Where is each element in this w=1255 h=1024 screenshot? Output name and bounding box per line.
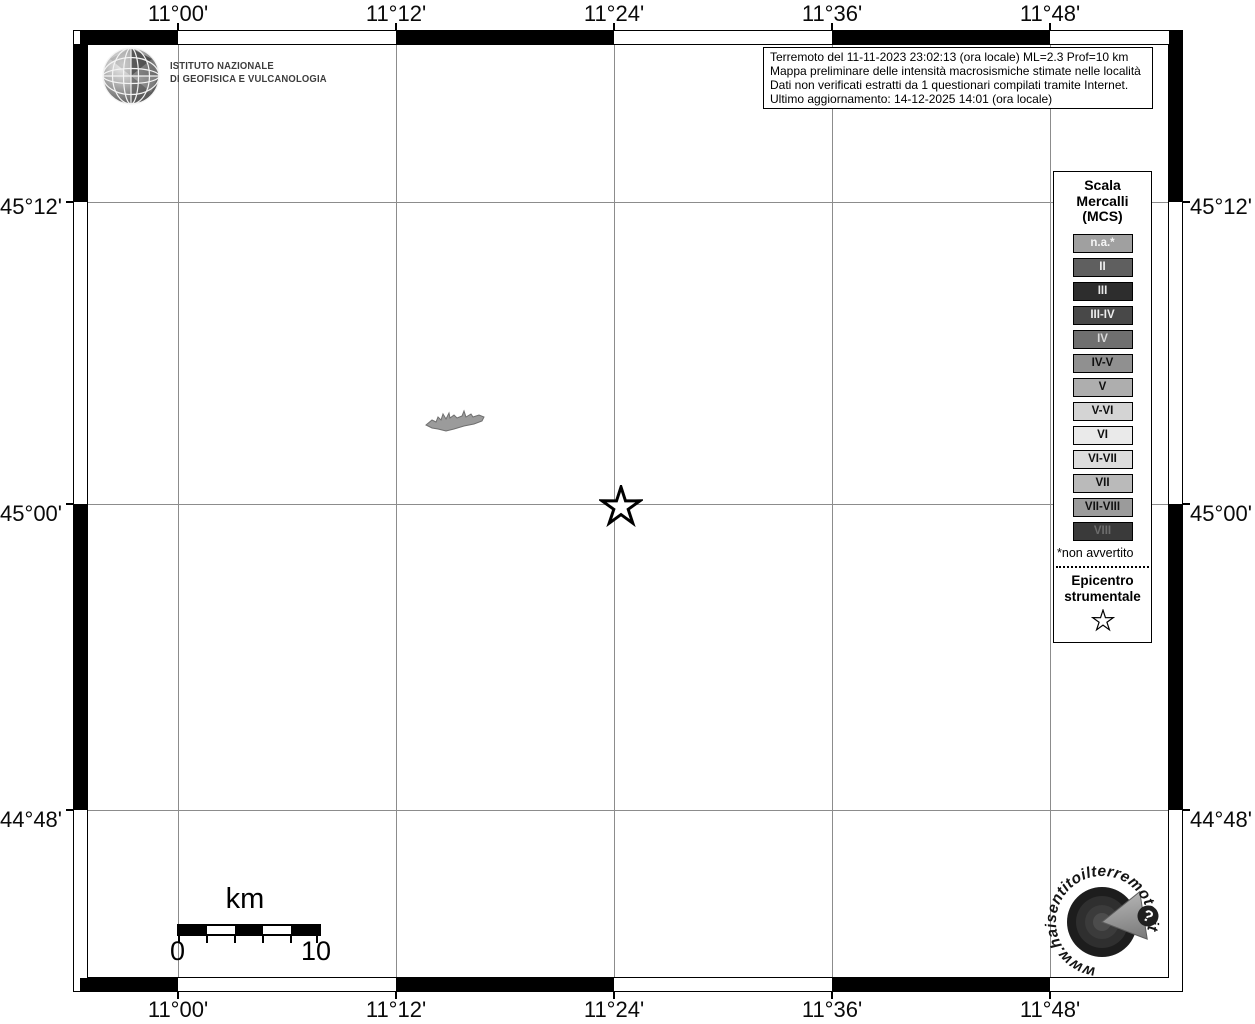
- epicenter-label-line2: strumentale: [1054, 589, 1151, 605]
- scalebar: [177, 924, 321, 936]
- info-line-last-update: Ultimo aggiornamento: 14-12-2025 14:01 (…: [770, 93, 1152, 107]
- axis-label-bottom-lon: 11°24': [584, 997, 644, 1023]
- axis-tick: [177, 23, 179, 30]
- epicenter-star-icon: [599, 485, 643, 529]
- scalebar-tick: [234, 936, 236, 943]
- axis-tick: [831, 992, 833, 999]
- legend-footnote: *non avvertito: [1054, 546, 1151, 560]
- axis-label-bottom-lon: 11°36': [802, 997, 862, 1023]
- scalebar-segment: [263, 926, 291, 934]
- map-frame-segment: [832, 978, 1050, 992]
- axis-tick: [1183, 201, 1190, 203]
- intensity-item-5: V: [1073, 378, 1133, 397]
- axis-label-right-lat: 44°48': [1190, 807, 1255, 833]
- map-frame-segment: [1169, 30, 1183, 44]
- intensity-item-6-7: VI-VII: [1073, 450, 1133, 469]
- scalebar-tick: [290, 936, 292, 943]
- axis-label-right-lat: 45°12': [1190, 194, 1255, 220]
- intensity-item-3-4: III-IV: [1073, 306, 1133, 325]
- info-line-event: Terremoto del 11-11-2023 23:02:13 (ora l…: [770, 51, 1152, 65]
- scalebar-segment: [207, 926, 235, 934]
- map-frame-segment: [1169, 44, 1183, 202]
- scalebar-unit-label: km: [203, 883, 287, 916]
- map-frame-segment: [396, 978, 614, 992]
- axis-tick: [66, 809, 73, 811]
- axis-tick: [1183, 809, 1190, 811]
- intensity-item-3: III: [1073, 282, 1133, 301]
- locality-polygon: [424, 398, 488, 438]
- legend-title-line2: Mercalli: [1054, 194, 1151, 210]
- scalebar-segment: [235, 926, 263, 934]
- haisentitoilterremoto-logo: www.haisentitoilterremoto.it ?: [1042, 862, 1168, 988]
- axis-tick: [177, 992, 179, 999]
- intensity-item-5-6: V-VI: [1073, 402, 1133, 421]
- axis-label-left-lat: 44°48': [0, 807, 62, 833]
- legend-title: Scala Mercalli (MCS): [1054, 172, 1151, 225]
- axis-label-bottom-lon: 11°48': [1020, 997, 1080, 1023]
- epicenter-label-line1: Epicentro: [1054, 573, 1151, 589]
- scalebar-end-label: 10: [301, 936, 361, 967]
- scalebar-tick: [262, 936, 264, 943]
- seismic-target-icon: [1067, 887, 1147, 957]
- scalebar-segment: [179, 926, 207, 934]
- info-line-map-type: Mappa preliminare delle intensità macros…: [770, 65, 1152, 79]
- map-frame-segment: [832, 30, 1050, 44]
- ingv-logo: ISTITUTO NAZIONALE DI GEOFISICA E VULCAN…: [100, 45, 400, 109]
- map-frame-segment: [73, 44, 87, 202]
- axis-tick: [66, 503, 73, 505]
- map-frame-segment: [80, 30, 178, 44]
- map-frame-segment: [80, 978, 178, 992]
- axis-tick: [1183, 503, 1190, 505]
- ingv-globe-icon: [100, 45, 162, 107]
- ingv-logo-text: ISTITUTO NAZIONALE DI GEOFISICA E VULCAN…: [170, 60, 327, 85]
- intensity-item-7: VII: [1073, 474, 1133, 493]
- axis-label-bottom-lon: 11°00': [148, 997, 208, 1023]
- axis-tick: [613, 992, 615, 999]
- axis-tick: [613, 23, 615, 30]
- epicenter-label: Epicentro strumentale: [1054, 573, 1151, 605]
- map-frame-segment: [1169, 504, 1183, 810]
- epicenter-legend-star-icon: [1091, 609, 1115, 633]
- info-line-data-source: Dati non verificati estratti da 1 questi…: [770, 79, 1152, 93]
- intensity-item-2: II: [1073, 258, 1133, 277]
- legend-title-line3: (MCS): [1054, 209, 1151, 225]
- ingv-logo-text-line1: ISTITUTO NAZIONALE: [170, 60, 327, 73]
- axis-tick: [66, 201, 73, 203]
- axis-label-bottom-lon: 11°12': [366, 997, 426, 1023]
- scalebar-segment: [291, 926, 319, 934]
- axis-label-left-lat: 45°12': [0, 194, 62, 220]
- legend-title-line1: Scala: [1054, 178, 1151, 194]
- macroseismic-map: 11°00' 11°12' 11°24' 11°36' 11°48' 11°00…: [0, 0, 1255, 1024]
- axis-tick: [1049, 992, 1051, 999]
- axis-tick: [831, 23, 833, 30]
- earthquake-info-box: Terremoto del 11-11-2023 23:02:13 (ora l…: [763, 47, 1153, 109]
- axis-tick: [395, 992, 397, 999]
- intensity-item-4-5: IV-V: [1073, 354, 1133, 373]
- mercalli-scale-legend: Scala Mercalli (MCS) n.a.* II III III-IV…: [1053, 171, 1152, 643]
- intensity-item-na: n.a.*: [1073, 234, 1133, 253]
- intensity-item-4: IV: [1073, 330, 1133, 349]
- intensity-item-7-8: VII-VIII: [1073, 498, 1133, 517]
- axis-label-left-lat: 45°00': [0, 501, 62, 527]
- intensity-item-8: VIII: [1073, 522, 1133, 541]
- map-frame-segment: [73, 504, 87, 810]
- legend-divider: [1056, 566, 1149, 568]
- ingv-logo-text-line2: DI GEOFISICA E VULCANOLOGIA: [170, 73, 327, 86]
- axis-tick: [395, 23, 397, 30]
- map-frame-segment: [396, 30, 614, 44]
- axis-tick: [1049, 23, 1051, 30]
- intensity-item-6: VI: [1073, 426, 1133, 445]
- scalebar-start-label: 0: [170, 936, 230, 967]
- axis-label-right-lat: 45°00': [1190, 501, 1255, 527]
